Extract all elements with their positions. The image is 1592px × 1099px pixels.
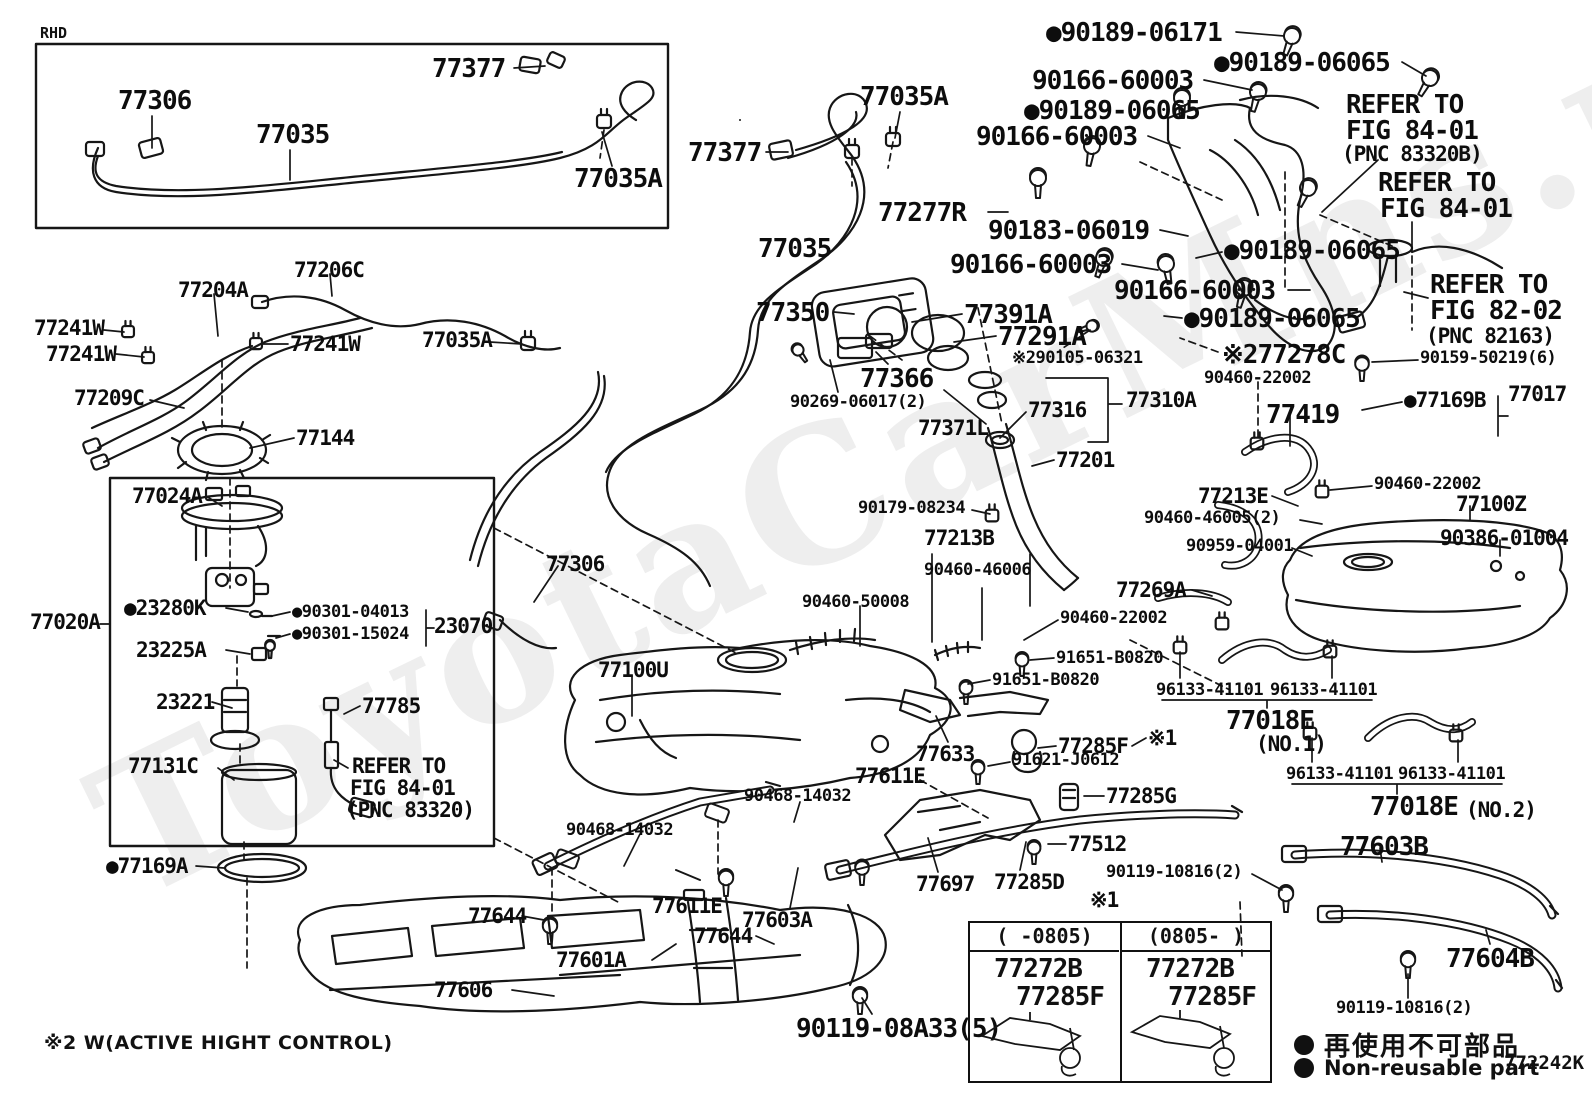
part-label-77206C: 77206C (294, 260, 364, 281)
part-label-NO1: (NO.1) (1256, 734, 1326, 755)
part-label-REFERTO: REFER TO (1378, 170, 1495, 197)
part-label-9095904001: 90959-04001 (1186, 538, 1293, 555)
part-label-9018306019: 90183-06019 (988, 218, 1149, 245)
part-label-FIG8202: FIG 82-02 (1430, 298, 1562, 325)
part-label-9046046006: 90460-46006 (924, 562, 1031, 579)
part-label-77419: 77419 (1266, 402, 1339, 429)
part-label-77316: 77316 (1028, 400, 1086, 421)
part-label-77241W: 77241W (34, 318, 104, 339)
part-label-9016660003: 90166-60003 (1032, 68, 1193, 95)
part-label-77377: 77377 (432, 56, 505, 83)
part-label-77272B: 77272B (994, 954, 1082, 984)
part-label-9018906065: ●90189-06065 (1184, 306, 1360, 333)
part-label-77213B: 77213B (924, 528, 994, 549)
part-label-29010506321: ※290105-06321 (1012, 350, 1143, 367)
part-label-77604B: 77604B (1446, 946, 1534, 973)
part-label-23221: 23221 (156, 692, 214, 713)
part-label-FIG8401: FIG 84-01 (350, 778, 455, 799)
part-label-9016660003: 90166-60003 (1114, 278, 1275, 305)
part-label-9613341101: 96133-41101 (1156, 682, 1263, 699)
part-label-1: ※1 (1090, 890, 1118, 911)
part-label-23280K: ●23280K (124, 598, 206, 619)
part-label-PNC82163: (PNC 82163) (1426, 326, 1554, 347)
leader-lines (100, 32, 1508, 1014)
rhd-tag: RHD (40, 24, 67, 42)
part-label-77213E: 77213E (1198, 486, 1268, 507)
part-label-90460460052: 90460-46005(2) (1144, 510, 1280, 527)
part-label-9018906171: ●90189-06171 (1046, 20, 1222, 47)
table-cell-before: 77272B 77285F (970, 952, 1119, 1081)
part-label-9046022002: 90460-22002 (1060, 610, 1167, 627)
part-label-NO2: (NO.2) (1466, 800, 1536, 821)
part-label-77785: 77785 (362, 696, 420, 717)
part-label-77035A: 77035A (574, 166, 662, 193)
part-label-77285D: 77285D (994, 872, 1064, 893)
part-label-9046022002: 90460-22002 (1374, 476, 1481, 493)
part-label-77035: 77035 (758, 236, 831, 263)
diagram-code: 772242K (1504, 1052, 1584, 1074)
rhd-box (36, 44, 668, 228)
part-label-77017: 77017 (1508, 384, 1566, 405)
part-label-77169B: ●77169B (1404, 390, 1486, 411)
part-label-9030104013: ●90301-04013 (292, 604, 409, 621)
part-label-9017908234: 90179-08234 (858, 500, 965, 517)
part-label-77018E: 77018E (1226, 708, 1314, 735)
legend-non-reusable-en: Non-reusable part (1294, 1056, 1539, 1080)
part-label-77018E: 77018E (1370, 794, 1458, 821)
non-reusable-dot-icon (1294, 1035, 1314, 1055)
part-label-77291A: 77291A (998, 324, 1086, 351)
left-pipes (82, 296, 560, 480)
table-header-before: ( -0805) (970, 923, 1119, 952)
table-sketch-bracket (970, 1008, 1119, 1078)
part-label-23225A: 23225A (136, 640, 206, 661)
part-label-77285G: 77285G (1106, 786, 1176, 807)
part-label-77100U: 77100U (598, 660, 668, 681)
part-label-23070: 23070 (434, 616, 492, 637)
part-label-1: ※1 (1148, 728, 1176, 749)
part-label-9613341101: 96133-41101 (1398, 766, 1505, 783)
part-label-77241W: 77241W (290, 334, 360, 355)
part-label-90119108162: 90119-10816(2) (1106, 864, 1242, 881)
part-label-77209C: 77209C (74, 388, 144, 409)
part-label-77697: 77697 (916, 874, 974, 895)
part-label-77603A: 77603A (742, 910, 812, 931)
part-label-77169A: ●77169A (106, 856, 188, 877)
part-label-PNC83320B: (PNC 83320B) (1342, 144, 1482, 165)
part-label-90269060172: 90269-06017(2) (790, 394, 926, 411)
table-cell-after: 77272B 77285F (1120, 952, 1270, 1081)
part-label-77272B: 77272B (1146, 954, 1234, 984)
part-label-9046022002: 90460-22002 (1204, 370, 1311, 387)
part-label-77204A: 77204A (178, 280, 248, 301)
part-label-77644: 77644 (468, 906, 526, 927)
part-label-FIG8401: FIG 84-01 (1346, 118, 1478, 145)
part-label-9613341101: 96133-41101 (1286, 766, 1393, 783)
part-label-FIG8401: FIG 84-01 (1380, 196, 1512, 223)
part-label-77131C: 77131C (128, 756, 198, 777)
part-label-77306: 77306 (118, 88, 191, 115)
part-label-77035A: 77035A (422, 330, 492, 351)
footnote-active-height: ※2 W(ACTIVE HIGHT CONTROL) (44, 1032, 393, 1054)
part-label-90159502196: 90159-50219(6) (1420, 350, 1556, 367)
part-label-77603B: 77603B (1340, 834, 1428, 861)
part-label-9046814032: 90468-14032 (744, 788, 851, 805)
part-label-77020A: 77020A (30, 612, 100, 633)
part-label-9046814032: 90468-14032 (566, 822, 673, 839)
parts-diagram-canvas: ToyotaCarMns.ru (0, 0, 1592, 1099)
part-label-90119108162: 90119-10816(2) (1336, 1000, 1472, 1017)
non-reusable-dot-icon (1294, 1058, 1314, 1078)
part-label-77611E: 77611E (652, 896, 722, 917)
part-label-77035: 77035 (256, 122, 329, 149)
part-label-REFERTO: REFER TO (1346, 92, 1463, 119)
table-header-after: (0805- ) (1120, 923, 1270, 952)
part-label-77144: 77144 (296, 428, 354, 449)
part-label-77377: 77377 (688, 140, 761, 167)
part-label-77310A: 77310A (1126, 390, 1196, 411)
part-label-9613341101: 96133-41101 (1270, 682, 1377, 699)
part-label-77306: 77306 (546, 554, 604, 575)
part-label-REFERTO: REFER TO (1430, 272, 1547, 299)
part-label-77100Z: 77100Z (1456, 494, 1526, 515)
part-label-77024A: 77024A (132, 486, 202, 507)
part-label-77606: 77606 (434, 980, 492, 1001)
part-label-9046050008: 90460-50008 (802, 594, 909, 611)
part-label-9030115024: ●90301-15024 (292, 626, 409, 643)
part-label-77277R: 77277R (878, 200, 966, 227)
part-label-9018906065: ●90189-06065 (1214, 50, 1390, 77)
main-fuel-pipe (470, 94, 900, 648)
part-label-9018906065: ●90189-06065 (1024, 98, 1200, 125)
part-label-77371L: 77371L (918, 418, 988, 439)
part-label-9038601004: 90386-01004 (1440, 528, 1568, 549)
part-label-91651B0820: 91651-B0820 (992, 672, 1099, 689)
o-ring (218, 854, 306, 882)
part-label-77366: 77366 (860, 366, 933, 393)
part-label-PNC83320: (PNC 83320) (346, 800, 474, 821)
part-label-9016660003: 90166-60003 (950, 252, 1111, 279)
part-label-91651B0820: 91651-B0820 (1056, 650, 1163, 667)
part-label-77035A: 77035A (860, 84, 948, 111)
part-label-77601A: 77601A (556, 950, 626, 971)
part-label-9016660003: 90166-60003 (976, 124, 1137, 151)
part-label-77269A: 77269A (1116, 580, 1186, 601)
part-label-277278C: ※277278C (1222, 342, 1345, 369)
part-label-77633: 77633 (916, 744, 974, 765)
table-sketch-bracket (1122, 1008, 1270, 1078)
part-label-77512: 77512 (1068, 834, 1126, 855)
part-label-77285F: 77285F (1058, 736, 1128, 757)
part-label-9018906065: ●90189-06065 (1224, 238, 1400, 265)
part-label-77241W: 77241W (46, 344, 116, 365)
part-label-77611E: 77611E (855, 766, 925, 787)
part-label-77201: 77201 (1056, 450, 1114, 471)
part-label-77350: 77350 (756, 300, 829, 327)
fasteners (543, 24, 1442, 1014)
part-label-REFERTO: REFER TO (352, 756, 445, 777)
applicability-table: ( -0805) (0805- ) 77272B 77285F 77272B 7… (968, 921, 1272, 1083)
